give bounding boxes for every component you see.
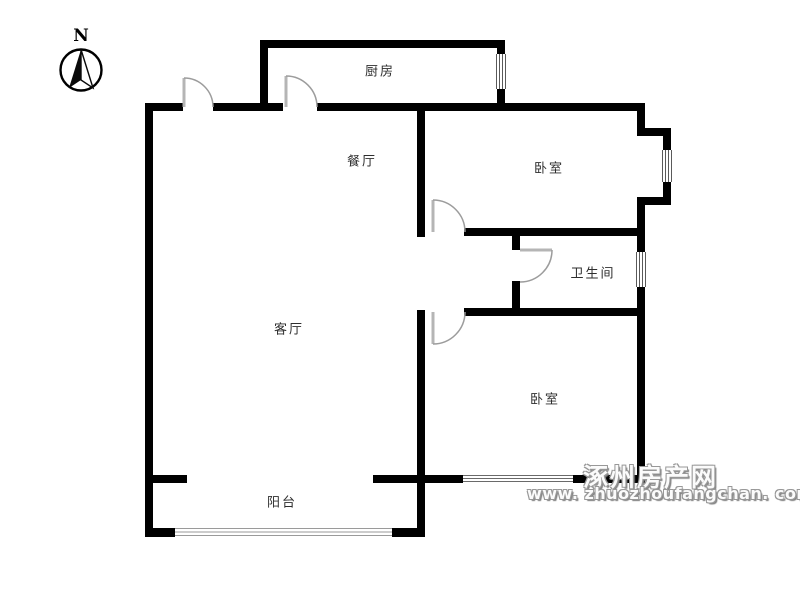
compass-n-letter: N [73, 26, 89, 46]
door-bathroom [520, 250, 552, 282]
wall-center-lower [417, 310, 425, 536]
room-label-bedroom-bottom: 卧室 [530, 389, 560, 408]
wall-top-segment-a [145, 103, 183, 111]
compass-north-indicator: N [53, 24, 109, 96]
wall-top-segment-c [317, 103, 645, 111]
window-bedroom-bottom [463, 475, 573, 484]
wall-left-outer [145, 103, 153, 537]
floor-plan: 厨房 餐厅 卧室 卫生间 客厅 卧室 阳台 N 涿州房产网 www. zhuoz… [0, 0, 800, 600]
room-label-living: 客厅 [274, 319, 304, 338]
watermark-site-url: www. zhuozhoufangchan. com [527, 484, 800, 503]
wall-bathroom-top [464, 228, 645, 236]
door-bedroom-bottom [433, 312, 465, 344]
door-bedroom-top [433, 200, 465, 232]
window-kitchen [496, 54, 506, 89]
compass-needle-left [69, 50, 81, 89]
wall-kitchen-right-upper [497, 40, 505, 54]
wall-kitchen-right-lower [497, 89, 505, 111]
window-bathroom [636, 252, 646, 287]
room-label-bedroom-top: 卧室 [534, 158, 564, 177]
wall-bay-outer-upper [663, 128, 671, 150]
wall-bathroom-left-lower [512, 281, 520, 316]
wall-top-segment-b [213, 103, 283, 111]
window-bedroom-top-bay [662, 150, 672, 182]
door-kitchen [286, 76, 317, 107]
wall-right-middle [637, 197, 645, 252]
wall-kitchen-left [260, 40, 268, 111]
wall-balcony-bottom-left [145, 528, 175, 537]
room-label-balcony: 阳台 [267, 492, 297, 511]
compass-needle-right [81, 50, 93, 89]
wall-kitchen-top [260, 40, 505, 48]
room-label-dining: 餐厅 [347, 151, 377, 170]
wall-balcony-divider-stub [145, 475, 187, 483]
room-label-kitchen: 厨房 [365, 61, 395, 80]
window-balcony [175, 528, 392, 537]
wall-center-upper [417, 111, 425, 237]
room-label-bathroom: 卫生间 [570, 263, 615, 282]
wall-bathroom-bottom [464, 308, 645, 316]
wall-right-lower [637, 287, 645, 483]
wall-bathroom-left-upper [512, 236, 520, 250]
door-entry [184, 78, 213, 107]
door-arcs-layer [0, 0, 800, 600]
